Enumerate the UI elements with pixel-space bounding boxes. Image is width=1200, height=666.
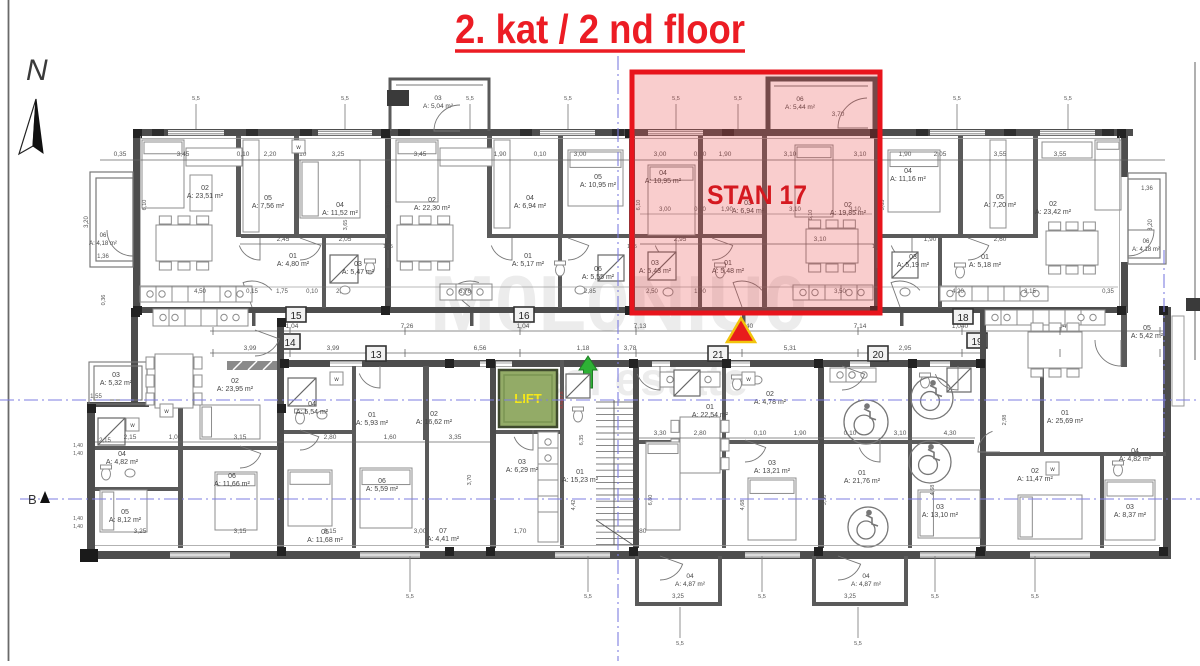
svg-text:1,40: 1,40: [73, 524, 83, 530]
svg-text:2,05: 2,05: [934, 151, 947, 158]
svg-text:1,40: 1,40: [73, 443, 83, 449]
svg-text:5,5: 5,5: [341, 96, 349, 102]
svg-text:3,15: 3,15: [324, 528, 337, 535]
svg-text:A: 8,12 m²: A: 8,12 m²: [109, 517, 142, 524]
svg-text:A: 6,94 m²: A: 6,94 m²: [514, 203, 547, 210]
svg-text:4,68: 4,68: [930, 485, 936, 496]
svg-text:1,00: 1,00: [169, 434, 182, 441]
svg-text:3,55: 3,55: [994, 151, 1007, 158]
svg-text:5,5: 5,5: [758, 594, 766, 600]
svg-text:20: 20: [872, 350, 884, 361]
svg-text:0,36: 0,36: [101, 295, 107, 306]
svg-text:w: w: [333, 377, 339, 383]
svg-text:03: 03: [768, 460, 776, 467]
svg-text:7,14: 7,14: [854, 323, 867, 330]
svg-text:06: 06: [100, 233, 107, 239]
svg-text:0,15: 0,15: [246, 289, 258, 295]
svg-text:A: 23,95 m²: A: 23,95 m²: [217, 386, 254, 393]
svg-text:1,36: 1,36: [1141, 186, 1153, 192]
svg-text:05: 05: [594, 174, 602, 181]
svg-text:3,55: 3,55: [1054, 151, 1067, 158]
svg-text:06: 06: [594, 266, 602, 273]
svg-text:05: 05: [996, 194, 1004, 201]
svg-text:07: 07: [439, 528, 447, 535]
svg-text:3,78: 3,78: [624, 345, 637, 352]
svg-text:02: 02: [1031, 468, 1039, 475]
svg-text:A: 8,37 m²: A: 8,37 m²: [1114, 512, 1147, 519]
svg-text:03: 03: [354, 261, 362, 268]
svg-text:A: 4,18 m²: A: 4,18 m²: [1132, 247, 1160, 253]
svg-text:4,42: 4,42: [571, 500, 577, 511]
svg-text:A: 15,23 m²: A: 15,23 m²: [562, 477, 599, 484]
svg-text:1,70: 1,70: [514, 528, 527, 535]
svg-text:3,20: 3,20: [84, 216, 90, 228]
svg-text:05: 05: [121, 509, 129, 516]
svg-text:0,10: 0,10: [237, 151, 250, 158]
svg-text:A: 11,47 m²: A: 11,47 m²: [1017, 476, 1053, 483]
svg-text:1,40: 1,40: [73, 451, 83, 457]
svg-text:w: w: [745, 377, 751, 383]
svg-text:1,90: 1,90: [924, 236, 937, 243]
svg-text:3,99: 3,99: [244, 345, 257, 352]
svg-text:6,10: 6,10: [386, 200, 392, 211]
svg-text:03: 03: [434, 95, 442, 102]
svg-text:1,60: 1,60: [384, 434, 397, 441]
svg-text:5,5: 5,5: [854, 641, 862, 647]
svg-text:w: w: [129, 423, 135, 429]
svg-text:3,70: 3,70: [467, 475, 473, 486]
svg-text:3,38: 3,38: [822, 495, 828, 506]
svg-text:15: 15: [290, 311, 302, 322]
svg-text:5,5: 5,5: [584, 594, 592, 600]
svg-text:2,60: 2,60: [994, 236, 1007, 243]
svg-text:1,55: 1,55: [90, 394, 102, 400]
svg-text:01: 01: [1061, 410, 1069, 417]
svg-text:1,04: 1,04: [286, 323, 299, 330]
svg-text:06: 06: [228, 473, 236, 480]
svg-text:04: 04: [862, 573, 870, 580]
svg-text:A: 5,42 m²: A: 5,42 m²: [1131, 333, 1164, 340]
svg-text:5,31: 5,31: [784, 345, 797, 352]
svg-text:1,75: 1,75: [276, 289, 288, 295]
svg-text:2,15: 2,15: [1024, 289, 1036, 295]
svg-text:5,5: 5,5: [406, 594, 414, 600]
svg-text:A: 13,21 m²: A: 13,21 m²: [754, 468, 791, 475]
svg-text:01: 01: [706, 404, 714, 411]
svg-text:3,45: 3,45: [414, 151, 427, 158]
svg-text:2,15: 2,15: [124, 434, 137, 441]
svg-text:05: 05: [1143, 325, 1151, 332]
svg-text:3,20: 3,20: [1148, 219, 1154, 231]
svg-text:1,25: 1,25: [383, 244, 393, 250]
svg-text:3,00: 3,00: [414, 528, 427, 535]
svg-text:2,45: 2,45: [277, 236, 290, 243]
svg-text:1,36: 1,36: [97, 254, 109, 260]
svg-text:5,5: 5,5: [564, 96, 572, 102]
svg-text:3,99: 3,99: [327, 345, 340, 352]
svg-text:2,80: 2,80: [694, 430, 707, 437]
svg-text:2,98: 2,98: [1002, 415, 1008, 426]
svg-text:18: 18: [957, 313, 969, 324]
svg-text:1,40: 1,40: [73, 516, 83, 522]
svg-text:01: 01: [368, 412, 376, 419]
svg-text:A: 16,62 m²: A: 16,62 m²: [416, 419, 453, 426]
svg-text:1,90: 1,90: [794, 430, 807, 437]
svg-text:3,15: 3,15: [234, 528, 247, 535]
svg-text:5,5: 5,5: [192, 96, 200, 102]
svg-text:w: w: [163, 409, 169, 415]
svg-text:0,10: 0,10: [844, 430, 857, 437]
svg-text:04: 04: [904, 168, 912, 175]
svg-text:6,56: 6,56: [474, 345, 487, 352]
svg-text:6,76: 6,76: [459, 289, 471, 295]
svg-text:3,25: 3,25: [844, 594, 856, 600]
svg-text:A: 4,80 m²: A: 4,80 m²: [277, 261, 310, 268]
svg-text:A: 11,66 m²: A: 11,66 m²: [214, 481, 250, 488]
svg-text:6,80: 6,80: [648, 495, 654, 506]
svg-text:4,20: 4,20: [952, 289, 964, 295]
svg-text:3,10: 3,10: [894, 430, 907, 437]
svg-text:01: 01: [576, 469, 584, 476]
svg-text:0,10: 0,10: [534, 151, 547, 158]
svg-text:06: 06: [1143, 239, 1150, 245]
svg-text:5,5: 5,5: [1031, 594, 1039, 600]
svg-text:2,80: 2,80: [634, 528, 647, 535]
svg-text:04: 04: [1131, 448, 1139, 455]
svg-text:A: 7,20 m²: A: 7,20 m²: [984, 202, 1017, 209]
svg-text:A: 21,76 m²: A: 21,76 m²: [844, 478, 881, 485]
svg-text:A: 13,10 m²: A: 13,10 m²: [922, 512, 959, 519]
svg-text:7,26: 7,26: [401, 323, 414, 330]
svg-text:A: 5,47 m²: A: 5,47 m²: [342, 269, 375, 276]
svg-text:w: w: [295, 145, 301, 151]
svg-text:5,5: 5,5: [1064, 96, 1072, 102]
svg-text:A: 11,16 m²: A: 11,16 m²: [890, 176, 926, 183]
svg-text:02: 02: [766, 391, 774, 398]
svg-text:w: w: [1049, 467, 1055, 473]
svg-text:3,25: 3,25: [332, 151, 345, 158]
svg-text:2,95: 2,95: [899, 345, 912, 352]
svg-text:LIFT: LIFT: [514, 391, 541, 406]
svg-text:A: 11,68 m²: A: 11,68 m²: [307, 537, 343, 544]
svg-text:A: 23,42 m²: A: 23,42 m²: [1035, 209, 1072, 216]
svg-text:1,90: 1,90: [494, 151, 507, 158]
svg-text:A: 22,30 m²: A: 22,30 m²: [414, 205, 451, 212]
svg-text:3,00: 3,00: [574, 151, 587, 158]
svg-text:1,90: 1,90: [899, 151, 912, 158]
svg-text:A: 10,95 m²: A: 10,95 m²: [580, 182, 617, 189]
svg-text:3,25: 3,25: [134, 528, 147, 535]
svg-text:4,50: 4,50: [194, 289, 206, 295]
svg-text:01: 01: [524, 253, 532, 260]
svg-text:1,18: 1,18: [577, 345, 590, 352]
svg-text:6,35: 6,35: [579, 435, 585, 446]
svg-text:5,5: 5,5: [931, 594, 939, 600]
svg-text:03: 03: [909, 254, 917, 261]
svg-text:04: 04: [308, 401, 316, 408]
svg-text:02: 02: [430, 411, 438, 418]
svg-text:B: B: [28, 492, 37, 507]
svg-text:A: 5,54 m²: A: 5,54 m²: [296, 409, 329, 416]
svg-text:A: 25,69 m²: A: 25,69 m²: [1047, 418, 1084, 425]
svg-text:4,68: 4,68: [740, 500, 746, 511]
svg-text:A: 5,55 m²: A: 5,55 m²: [582, 274, 615, 281]
svg-text:3,30: 3,30: [654, 430, 667, 437]
svg-text:5,5: 5,5: [466, 96, 474, 102]
svg-text:2,85: 2,85: [584, 289, 596, 295]
svg-text:STAN 17: STAN 17: [707, 180, 807, 210]
svg-text:1,04: 1,04: [517, 323, 530, 330]
svg-text:A: 5,93 m²: A: 5,93 m²: [356, 420, 389, 427]
svg-text:06: 06: [378, 478, 386, 485]
svg-text:A: 5,17 m²: A: 5,17 m²: [512, 261, 545, 268]
svg-text:0,35: 0,35: [1102, 289, 1114, 295]
svg-text:5,5: 5,5: [953, 96, 961, 102]
svg-text:A: 22,54 m²: A: 22,54 m²: [692, 412, 729, 419]
svg-text:0,10: 0,10: [306, 289, 318, 295]
svg-text:A: 4,41 m²: A: 4,41 m²: [427, 536, 460, 543]
svg-text:4,30: 4,30: [944, 430, 957, 437]
svg-text:2,05: 2,05: [339, 236, 352, 243]
svg-text:01: 01: [858, 470, 866, 477]
svg-text:A: 6,29 m²: A: 6,29 m²: [506, 467, 539, 474]
svg-text:A: 5,19 m²: A: 5,19 m²: [897, 262, 930, 269]
svg-text:04: 04: [336, 202, 344, 209]
svg-text:02: 02: [428, 197, 436, 204]
svg-text:A: 4,82 m²: A: 4,82 m²: [1119, 456, 1152, 463]
svg-text:A: 5,59 m²: A: 5,59 m²: [366, 486, 399, 493]
svg-text:01: 01: [289, 253, 297, 260]
svg-text:3,65: 3,65: [343, 220, 349, 231]
svg-text:02: 02: [201, 185, 209, 192]
svg-text:03: 03: [112, 372, 120, 379]
svg-text:A: 4,82 m²: A: 4,82 m²: [106, 459, 139, 466]
svg-text:6,10: 6,10: [142, 200, 148, 211]
svg-text:2,20: 2,20: [264, 151, 277, 158]
svg-text:5,5: 5,5: [676, 641, 684, 647]
svg-text:03: 03: [936, 504, 944, 511]
svg-text:0,10: 0,10: [754, 430, 767, 437]
svg-text:02: 02: [1049, 201, 1057, 208]
svg-text:N: N: [26, 54, 48, 87]
svg-text:04: 04: [526, 195, 534, 202]
svg-text:A: 5,04 m²: A: 5,04 m²: [423, 103, 454, 110]
svg-text:0,35: 0,35: [114, 151, 127, 158]
svg-text:2,15: 2,15: [99, 438, 111, 444]
svg-text:3,25: 3,25: [672, 594, 684, 600]
svg-text:A: 5,32 m²: A: 5,32 m²: [100, 380, 133, 387]
svg-text:A: 7,56 m²: A: 7,56 m²: [252, 203, 285, 210]
svg-text:A: 4,87 m²: A: 4,87 m²: [675, 581, 706, 588]
svg-text:A: 23,51 m²: A: 23,51 m²: [187, 193, 224, 200]
svg-text:2,80: 2,80: [324, 434, 337, 441]
svg-text:04: 04: [686, 573, 694, 580]
svg-text:14: 14: [284, 338, 296, 349]
svg-text:A: 4,87 m²: A: 4,87 m²: [851, 581, 882, 588]
svg-text:3,15: 3,15: [234, 434, 247, 441]
svg-text:13: 13: [370, 350, 382, 361]
svg-text:03: 03: [518, 459, 526, 466]
svg-text:02: 02: [231, 378, 239, 385]
svg-text:3,45: 3,45: [177, 151, 190, 158]
svg-text:01: 01: [981, 254, 989, 261]
svg-text:03: 03: [1126, 504, 1134, 511]
svg-text:2. kat / 2 nd floor: 2. kat / 2 nd floor: [455, 6, 745, 52]
svg-text:A: 5,18 m²: A: 5,18 m²: [969, 262, 1002, 269]
svg-text:04: 04: [118, 451, 126, 458]
svg-text:16: 16: [518, 311, 530, 322]
svg-text:A: 11,52 m²: A: 11,52 m²: [322, 210, 358, 217]
svg-text:05: 05: [264, 195, 272, 202]
svg-text:3,35: 3,35: [449, 434, 462, 441]
